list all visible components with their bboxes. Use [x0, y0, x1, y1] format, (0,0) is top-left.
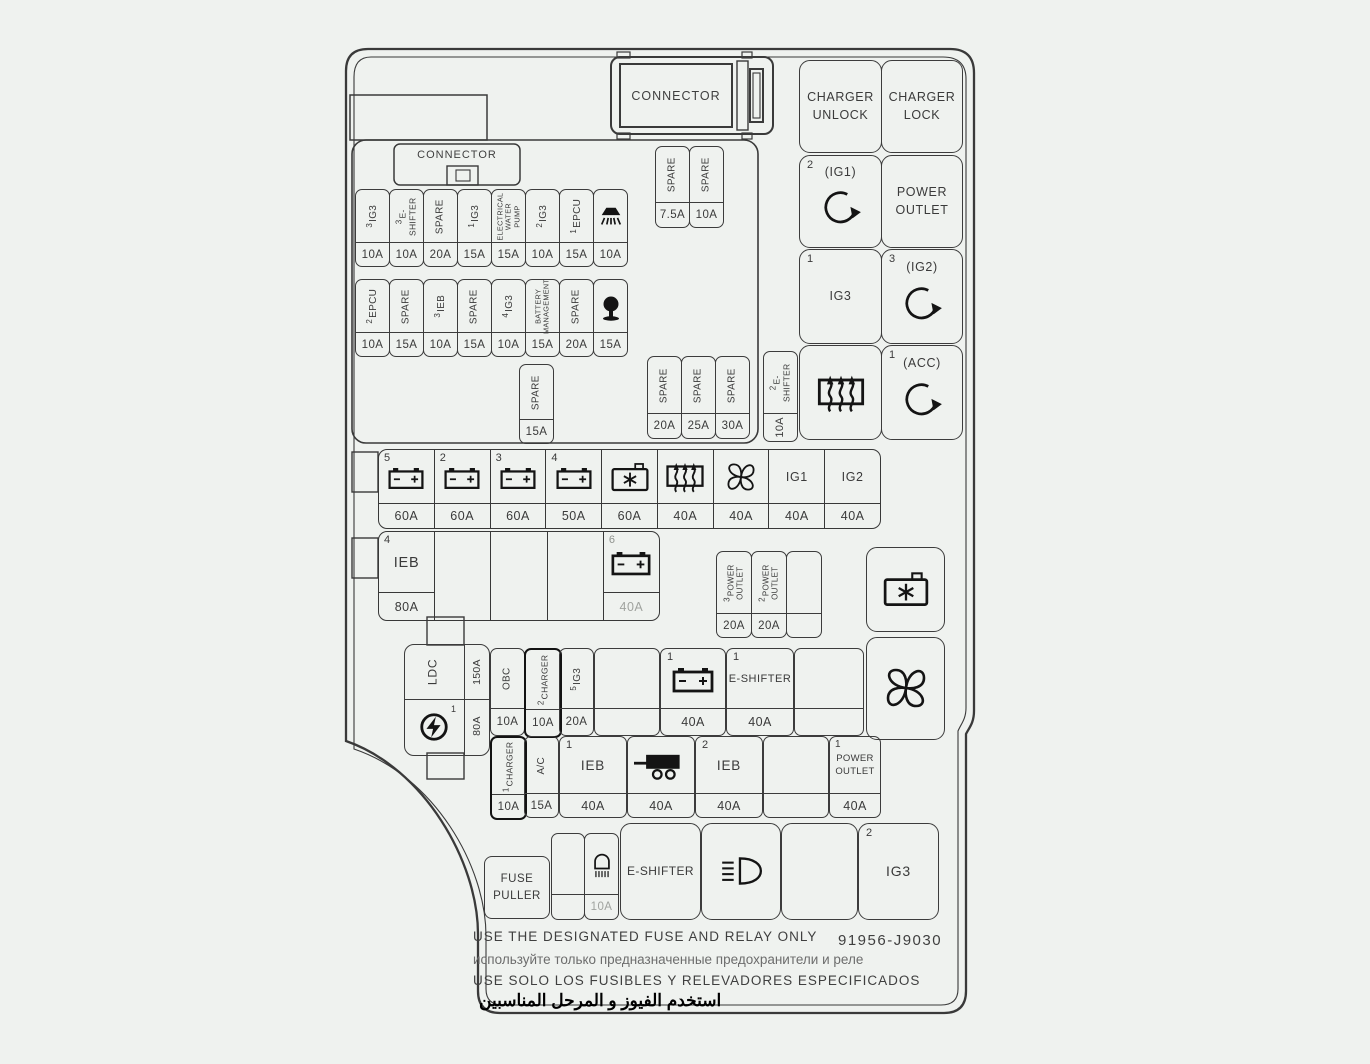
fuse-amp: 60A [491, 503, 546, 528]
fuse-battery-3: 3 60A [491, 450, 547, 528]
fuse-number: 3 [433, 313, 442, 318]
fuse-trailer: 40A [627, 736, 695, 818]
heater-icon [664, 459, 706, 495]
empty-fuse-slot [551, 833, 585, 920]
fuse-amp: 10A [390, 242, 423, 266]
fuse-battery-1: 1 40A [660, 648, 726, 736]
fuse-label: BATTERY MANAGEMENT [534, 279, 551, 334]
fuse-amp: 10A [526, 242, 559, 266]
ieb-fuse-grid: 4 IEB 80A 6 40A [378, 531, 660, 621]
fuse-amp: 10A [491, 708, 524, 735]
fuse-label: SPARE [693, 368, 705, 403]
fuse-amp: 20A [648, 413, 681, 438]
fuse-label: E-SHIFTER [772, 364, 792, 402]
relay-label: IG3 [859, 824, 938, 919]
fuse-number: 3 [395, 219, 404, 224]
fuse-amp: 15A [560, 242, 593, 266]
fuse-power-outlet-3: 3POWER OUTLET 20A [716, 551, 752, 638]
fuse-amp: 150A [471, 659, 483, 685]
empty-fuse-slot [794, 648, 864, 736]
relay-seat-heater [799, 345, 882, 440]
relay-label: (IG2) [882, 259, 962, 276]
fuse-number: 3 [723, 597, 732, 602]
fuse-spare: SPARE 15A [389, 279, 424, 357]
fuse-amp: 15A [390, 332, 423, 356]
fuse-number: 2 [536, 700, 545, 705]
fuse-amp: 60A [435, 503, 490, 528]
fuse-number: 2 [758, 597, 767, 602]
fuse-number: 2 [365, 319, 374, 324]
fuse-ieb-1: 1 IEB 40A [559, 736, 627, 818]
fuse-power-outlet-2: 2POWER OUTLET 20A [751, 551, 787, 638]
fuse-label: SPARE [531, 375, 543, 410]
battery-icon [499, 464, 537, 491]
fuse-amp: 10A [424, 332, 457, 356]
fuse-amp: 80A [471, 717, 483, 737]
fuse-amp: 15A [520, 419, 553, 443]
relay-label: CHARGER LOCK [882, 61, 962, 152]
fuse-eshifter-3: 3E-SHIFTER 10A [389, 189, 424, 267]
fuse-amp: 15A [458, 332, 491, 356]
fuse-label: LDC [427, 659, 441, 685]
fuse-power-outlet-1: 1 POWER OUTLET 40A [829, 736, 881, 818]
fuse-epcu-1: 1EPCU 15A [559, 189, 594, 267]
fuse-number: 5 [569, 686, 578, 691]
fuse-puller: FUSE PULLER [484, 856, 550, 919]
fuse-amp: 40A [714, 503, 769, 528]
ldc-fuse-block: LDC 150A 1 80A [404, 644, 490, 756]
fuse-label: SPARE [727, 368, 739, 403]
fuse-number: 1 [569, 229, 578, 234]
empty-relay-slot [781, 823, 858, 920]
relay-ig1: 2 (IG1) [799, 155, 882, 248]
fuse-amp: 10A [492, 794, 525, 818]
fuse-number: 5 [384, 452, 390, 464]
fan-icon [876, 658, 936, 718]
fuse-ig2: IG2 40A [825, 450, 880, 528]
fuse-label: IEB [560, 737, 626, 794]
relay-ig3: 1 IG3 [799, 249, 882, 344]
fuse-amp: 40A [560, 793, 626, 817]
fuse-battery-management: BATTERY MANAGEMENT 15A [525, 279, 560, 357]
fuse-amp: 40A [658, 503, 713, 528]
fuse-ig3-3: 3IG3 10A [355, 189, 390, 267]
fuse-ac: A/C 15A [524, 736, 559, 818]
relay-label: E-SHIFTER [621, 824, 700, 919]
empty-slot [548, 532, 604, 620]
washer-icon [598, 204, 624, 230]
relay-label: (IG1) [800, 164, 881, 181]
fuse-ig3-4: 4IG3 10A [491, 279, 526, 357]
fuse-battery-2: 2 60A [435, 450, 491, 528]
empty-slot [435, 532, 491, 620]
fuse-spare-20a: SPARE 20A [647, 356, 682, 439]
fuse-spare-7-5a: SPARE 7.5A [655, 146, 690, 228]
fuse-battery-4: 4 50A [546, 450, 602, 528]
fuse-amp: 10A [774, 417, 787, 437]
room-lamp-icon [589, 850, 615, 880]
fuse-amp: 80A [379, 592, 434, 620]
fuse-amp: 15A [594, 332, 627, 356]
fuse-obc: OBC 10A [490, 648, 525, 736]
fuse-cooling-fan: 40A [714, 450, 770, 528]
fuse-amp: 10A [594, 242, 627, 266]
empty-fuse-slot [594, 648, 660, 736]
fuse-amp: 40A [830, 793, 880, 817]
fuse-number: 4 [501, 313, 510, 318]
fuse-amp: 40A [696, 793, 762, 817]
fuse-number: 6 [609, 534, 615, 546]
fuse-puller-label: FUSE PULLER [493, 871, 541, 903]
headlamp-icon [718, 855, 764, 887]
fan-icon [720, 456, 762, 498]
connector-inner-label: CONNECTOR [417, 149, 497, 161]
connector-top: CONNECTOR [622, 66, 730, 126]
battery-icon [610, 548, 652, 577]
footer-line-arabic: استخدم الفيوز و المرحل المناسبين [479, 991, 721, 1011]
fuse-amp: 40A [604, 592, 659, 620]
ac-compressor-icon [882, 570, 930, 608]
fuse-ig3-5: 5IG3 20A [559, 648, 594, 736]
fuse-amp: 15A [492, 242, 525, 266]
footer-line-spanish: USE SOLO LOS FUSIBLES Y RELEVADORES ESPE… [473, 973, 920, 988]
relay-label: CHARGER UNLOCK [800, 61, 881, 152]
fuse-label: IG3 [538, 205, 549, 222]
fuse-amp: 10A [526, 709, 560, 736]
connector-top-label: CONNECTOR [631, 89, 720, 103]
fuse-amp: 15A [526, 332, 559, 356]
fuse-label: ELECTRICAL WATER PUMP [496, 192, 521, 240]
fuse-label: OBC [502, 668, 514, 691]
fuse-label: E-SHIFTER [398, 197, 418, 235]
relay-eshifter: E-SHIFTER [620, 823, 701, 920]
fuse-ieb-3: 3IEB 10A [423, 279, 458, 357]
fuse-label: SPARE [571, 289, 583, 324]
relay-label: IG3 [800, 250, 881, 343]
fuse-charger-2: 2CHARGER 10A [524, 648, 562, 738]
fuse-label: SPARE [435, 199, 447, 234]
fuse-amp: 15A [525, 793, 558, 817]
fuse-spare: SPARE 15A [457, 279, 492, 357]
fuse-ig3-2: 2IG3 10A [525, 189, 560, 267]
battery-icon [443, 464, 481, 491]
fuse-amp: 40A [727, 708, 793, 735]
rotary-switch-icon [899, 376, 945, 426]
fuse-room-lamp: 10A [584, 833, 619, 920]
relay-acc: 1 (ACC) [881, 345, 963, 440]
fuse-amp: 40A [769, 503, 824, 528]
empty-fuse-slot [786, 551, 822, 638]
fuse-ig1: IG1 40A [769, 450, 825, 528]
fuse-number: 3 [365, 223, 374, 228]
fuse-label: IG1 [769, 450, 824, 504]
empty-slot [491, 532, 547, 620]
fuse-epcu-2: 2EPCU 10A [355, 279, 390, 357]
fuse-washer: 10A [593, 189, 628, 267]
fuse-label: EPCU [368, 289, 379, 318]
relay-charger-unlock: CHARGER UNLOCK [799, 60, 882, 153]
fuse-label: IEB [436, 295, 447, 312]
relay-label: (ACC) [882, 355, 962, 372]
relay-ig3-2: 2 IG3 [858, 823, 939, 920]
fuse-eshifter-1: 1 E-SHIFTER 40A [726, 648, 794, 736]
fuse-number: 2 [535, 223, 544, 228]
fuse-amp: 60A [379, 503, 434, 528]
trailer-icon [634, 752, 688, 780]
empty-fuse-slot [763, 736, 829, 818]
part-number: 91956-J9030 [838, 932, 942, 949]
fuse-electrical-water-pump: ELECTRICAL WATER PUMP 15A [491, 189, 526, 267]
horn-icon [598, 292, 624, 322]
fuse-number: 1 [467, 223, 476, 228]
fuse-number: 3 [496, 452, 502, 464]
fuse-amp: 10A [585, 894, 618, 919]
fuse-heater: 40A [658, 450, 714, 528]
fuse-number: 2 [440, 452, 446, 464]
fuse-label: SPARE [469, 289, 481, 324]
heater-icon [815, 370, 867, 416]
battery-icon [387, 464, 425, 491]
footer-line-english: USE THE DESIGNATED FUSE AND RELAY ONLY [473, 929, 817, 944]
fuse-ig3-1: 1IG3 15A [457, 189, 492, 267]
fuse-label: IG3 [470, 205, 481, 222]
fuse-label: A/C [536, 757, 548, 775]
fuse-amp: 60A [602, 503, 657, 528]
fuse-label: CHARGER [539, 655, 549, 700]
fuse-label: SPARE [667, 158, 679, 193]
fuse-spare: SPARE 20A [559, 279, 594, 357]
fuse-number: 4 [384, 534, 390, 546]
fuse-amp: 10A [356, 242, 389, 266]
fuse-label: EPCU [572, 199, 583, 228]
ac-compressor-icon [610, 461, 650, 493]
fuse-amp: 25A [682, 413, 715, 438]
fuse-ac-compressor: 60A [602, 450, 658, 528]
fuse-spare: SPARE 20A [423, 189, 458, 267]
fuse-amp: 50A [546, 503, 601, 528]
relay-power-outlet: POWER OUTLET [881, 155, 963, 248]
fuse-amp: 15A [458, 242, 491, 266]
battery-icon [555, 464, 593, 491]
fuse-amp: 20A [717, 613, 751, 637]
fuse-charger-1: 1CHARGER 10A [490, 736, 527, 820]
battery-icon [671, 664, 715, 694]
fuse-amp: 20A [560, 332, 593, 356]
fuse-amp: 7.5A [656, 202, 689, 227]
fuse-amp: 40A [661, 708, 725, 735]
relay-ac-compressor [866, 547, 945, 632]
relay-label: POWER OUTLET [882, 156, 962, 247]
fuse-horn: 15A [593, 279, 628, 357]
fuse-amp: 40A [825, 503, 880, 528]
fuse-amp: 10A [356, 332, 389, 356]
relay-charger-lock: CHARGER LOCK [881, 60, 963, 153]
fuse-spare-25a: SPARE 25A [681, 356, 716, 439]
fuse-label: POWER OUTLET [830, 737, 880, 794]
fuse-amp: 10A [690, 202, 723, 227]
fuse-label: SPARE [401, 289, 413, 324]
fuse-number: 4 [551, 452, 557, 464]
fuse-ieb-4: 4 IEB 80A [379, 532, 435, 620]
fuse-label: IEB [696, 737, 762, 794]
relay-ig2: 3 (IG2) [881, 249, 963, 344]
fuse-label: IG3 [504, 295, 515, 312]
fuse-label: SPARE [659, 368, 671, 403]
fuse-ieb-2: 2 IEB 40A [695, 736, 763, 818]
fuse-eshifter-2: 2E-SHIFTER 10A [763, 351, 798, 442]
fuse-spare-15a: SPARE 15A [519, 364, 554, 444]
fuse-amp: 10A [492, 332, 525, 356]
main-fuse-grid: 5 60A 2 60A 3 60A 4 50A 60A 40A [378, 449, 881, 529]
fuse-number: 2 [769, 386, 778, 391]
fuse-battery-5: 5 60A [379, 450, 435, 528]
fuse-amp: 20A [424, 242, 457, 266]
fuse-label: POWER OUTLET [762, 564, 780, 599]
fuse-label: IG2 [825, 450, 880, 504]
ev-charge-icon [418, 711, 450, 743]
fuse-amp: 20A [560, 708, 593, 735]
fuse-box-diagram: CONNECTOR CONNECTOR CHARGER UNLOCK CHARG… [0, 0, 1370, 1064]
fuse-number: 1 [451, 704, 456, 714]
connector-inner: CONNECTOR [394, 147, 520, 163]
relay-cooling-fan [866, 637, 945, 740]
fuse-spare-10a: SPARE 10A [689, 146, 724, 228]
fuse-amp: 40A [628, 793, 694, 817]
rotary-switch-icon [899, 280, 945, 330]
rotary-switch-icon [818, 184, 864, 234]
fuse-battery-6: 6 40A [604, 532, 659, 620]
fuse-label: SPARE [701, 158, 713, 193]
fuse-amp: 20A [752, 613, 786, 637]
fuse-label: POWER OUTLET [727, 564, 745, 599]
fuse-number: 1 [502, 787, 511, 792]
fuse-label: IG3 [572, 668, 583, 685]
fuse-label: E-SHIFTER [727, 649, 793, 709]
fuse-amp: 30A [716, 413, 749, 438]
footer-line-russian: используйте только предназначенные предо… [473, 952, 863, 967]
fuse-label: IG3 [368, 205, 379, 222]
fuse-spare-30a: SPARE 30A [715, 356, 750, 439]
relay-headlamp [701, 823, 781, 920]
fuse-label: CHARGER [505, 741, 515, 786]
